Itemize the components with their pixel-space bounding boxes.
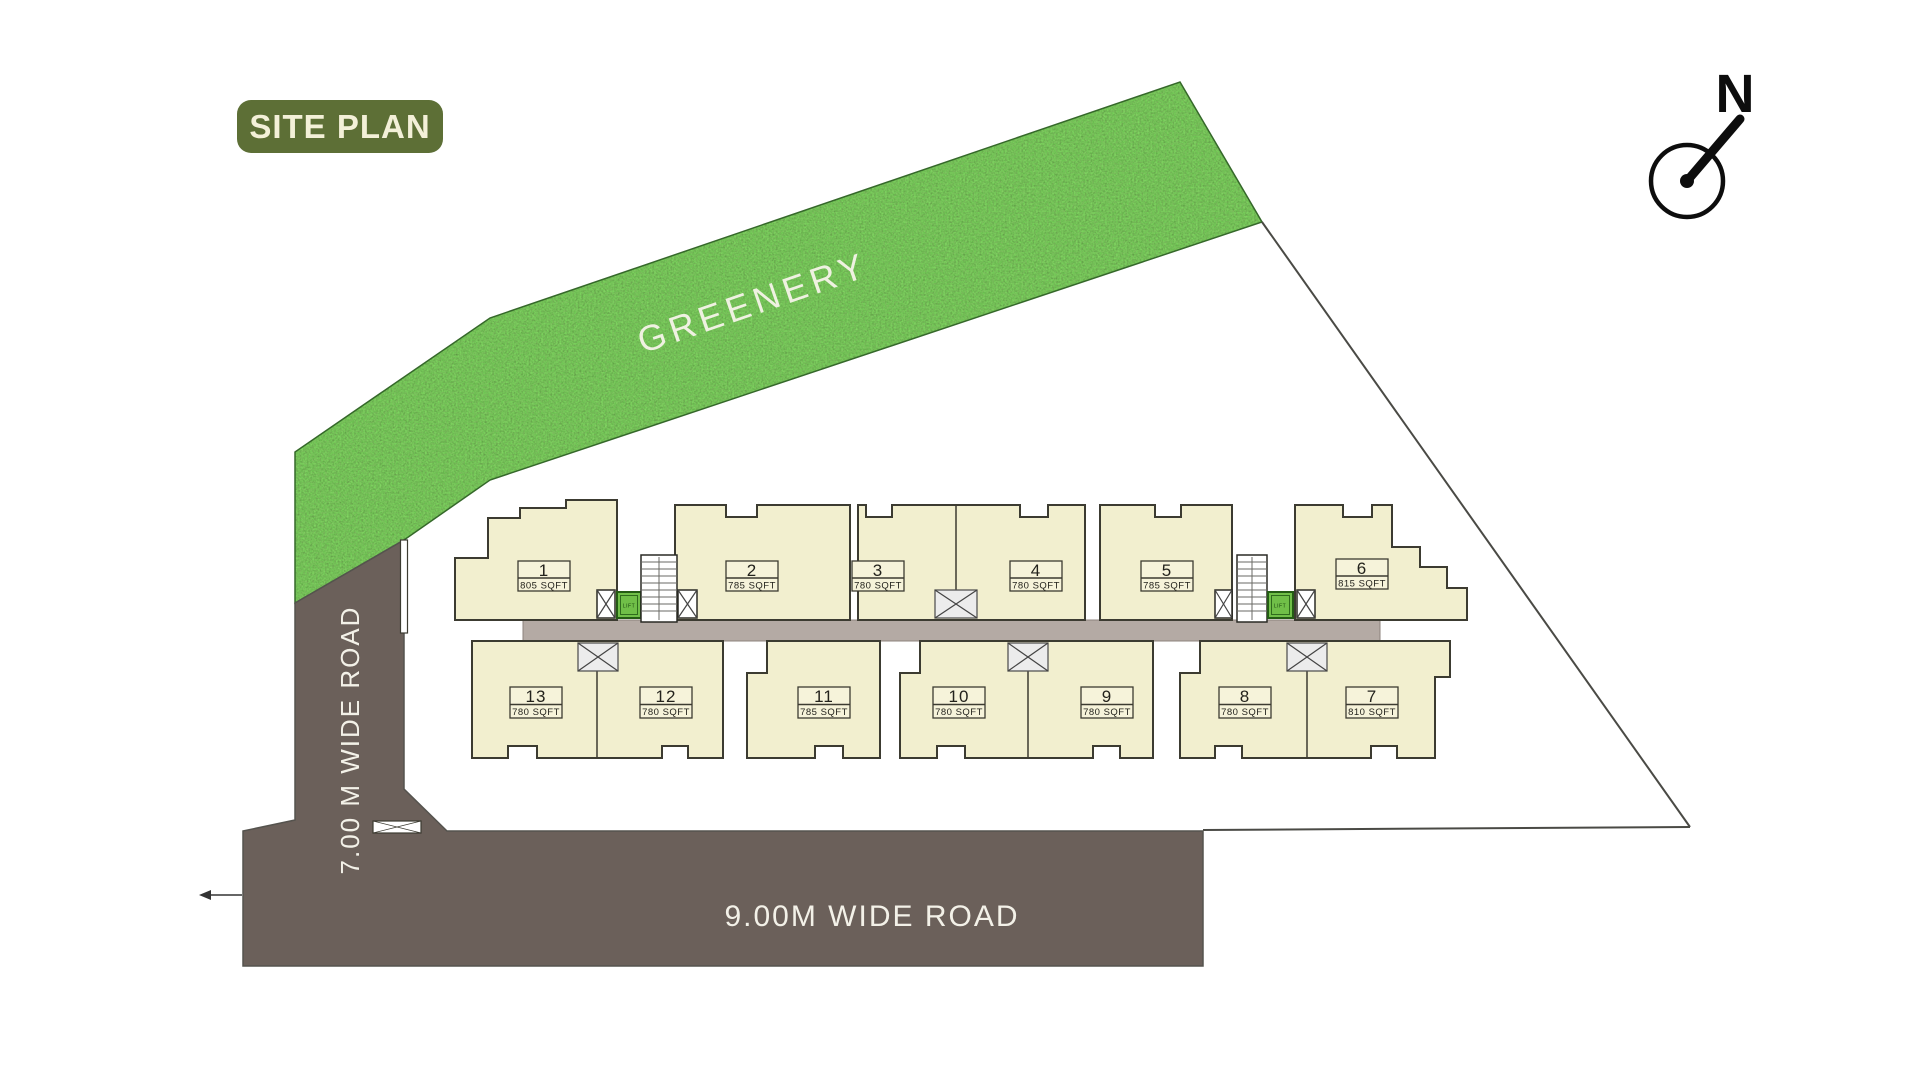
core2-lift-label: LIFT	[1274, 604, 1286, 610]
unit-label-9: 9 780 SQFT	[1081, 687, 1133, 718]
unit-1-area: 805 SQFT	[520, 581, 568, 592]
boundary-line-bottom	[1203, 827, 1690, 830]
compass-center-dot	[1680, 174, 1694, 188]
unit-11-area: 785 SQFT	[800, 707, 848, 718]
shaft-13-12	[578, 643, 618, 671]
page-title: SITE PLAN	[249, 108, 430, 145]
core2-staircase	[1237, 555, 1267, 622]
unit-label-10: 10 780 SQFT	[933, 687, 985, 718]
core2-shaft-right	[1297, 590, 1315, 618]
compass-needle-icon	[1687, 119, 1740, 181]
unit-10-area: 780 SQFT	[935, 707, 983, 718]
unit-13-area: 780 SQFT	[512, 707, 560, 718]
unit-1-number: 1	[539, 561, 549, 580]
core1-lift: LIFT	[617, 592, 641, 618]
left-road-label: 7.00 M WIDE ROAD	[335, 606, 365, 875]
unit-label-5: 5 785 SQFT	[1141, 561, 1193, 592]
unit-6-number: 6	[1357, 559, 1367, 578]
unit-2-area: 785 SQFT	[728, 581, 776, 592]
north-label: N	[1716, 64, 1755, 124]
unit-8-area: 780 SQFT	[1221, 707, 1269, 718]
unit-label-12: 12 780 SQFT	[640, 687, 692, 718]
unit-13-number: 13	[526, 687, 547, 706]
unit-label-4: 4 780 SQFT	[1010, 561, 1062, 592]
bottom-road-label: 9.00M WIDE ROAD	[724, 900, 1019, 933]
unit-5-area: 785 SQFT	[1143, 581, 1191, 592]
unit-12-number: 12	[656, 687, 677, 706]
core1-staircase	[641, 555, 677, 622]
north-compass: N	[1651, 64, 1755, 217]
entrance-gate	[373, 821, 421, 833]
shaft-3-4	[935, 590, 977, 618]
unit-label-13: 13 780 SQFT	[510, 687, 562, 718]
unit-11-number: 11	[814, 687, 834, 706]
unit-4-number: 4	[1031, 561, 1041, 580]
unit-label-1: 1 805 SQFT	[518, 561, 570, 592]
site-plan-page: GREENERY 7.00 M WIDE ROAD 9.00M WIDE ROA…	[0, 0, 1920, 1080]
unit-label-7: 7 810 SQFT	[1346, 687, 1398, 718]
unit-2-number: 2	[747, 561, 757, 580]
compound-wall	[401, 540, 408, 633]
unit-label-3: 3 780 SQFT	[852, 561, 904, 592]
unit-10-number: 10	[949, 687, 970, 706]
core1-lift-label: LIFT	[623, 604, 635, 610]
unit-label-6: 6 815 SQFT	[1336, 559, 1388, 590]
unit-9-area: 780 SQFT	[1083, 707, 1131, 718]
unit-4-area: 780 SQFT	[1012, 581, 1060, 592]
unit-9-number: 9	[1102, 687, 1112, 706]
unit-label-11: 11 785 SQFT	[798, 687, 850, 718]
internal-driveway	[523, 620, 1380, 641]
shaft-10-9	[1008, 643, 1048, 671]
core1-shaft-left	[597, 590, 615, 618]
unit-1-plot	[455, 500, 617, 620]
core2-lift: LIFT	[1268, 592, 1293, 618]
unit-label-2: 2 785 SQFT	[726, 561, 778, 592]
unit-8-number: 8	[1240, 687, 1250, 706]
dimension-arrowhead	[199, 890, 211, 900]
unit-5-number: 5	[1162, 561, 1172, 580]
unit-label-8: 8 780 SQFT	[1219, 687, 1271, 718]
unit-3-area: 780 SQFT	[854, 581, 902, 592]
unit-12-area: 780 SQFT	[642, 707, 690, 718]
shaft-8-7	[1287, 643, 1327, 671]
unit-6-area: 815 SQFT	[1338, 579, 1386, 590]
core1-shaft-right	[678, 590, 697, 618]
unit-7-area: 810 SQFT	[1348, 707, 1396, 718]
unit-7-number: 7	[1367, 687, 1377, 706]
core2-shaft-left	[1215, 590, 1232, 618]
title-banner: SITE PLAN	[237, 100, 443, 153]
unit-3-number: 3	[873, 561, 883, 580]
site-plan-canvas: GREENERY 7.00 M WIDE ROAD 9.00M WIDE ROA…	[0, 0, 1920, 1080]
